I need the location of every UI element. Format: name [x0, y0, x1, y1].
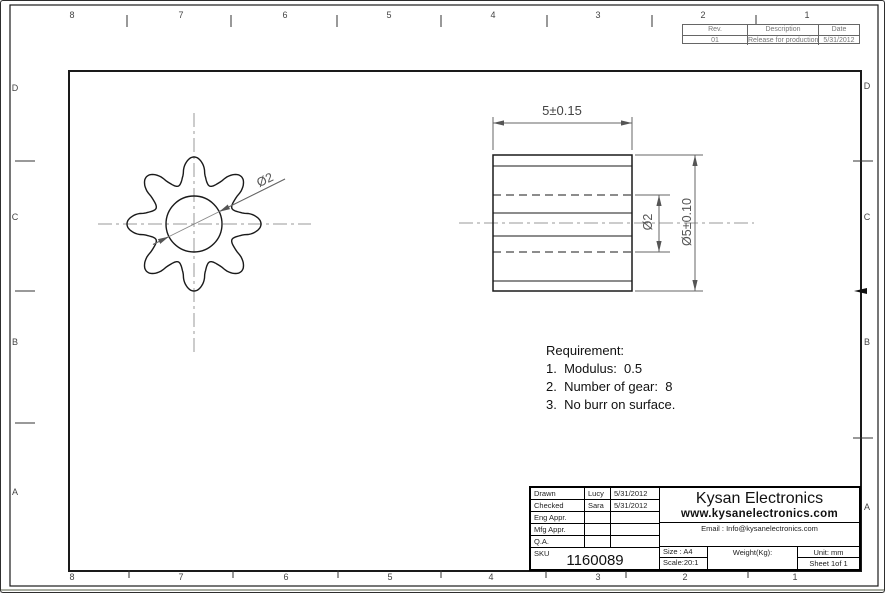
zone-label-bottom-4: 4	[485, 572, 497, 582]
qa-date	[611, 536, 660, 548]
zone-label-right-b: B	[861, 337, 873, 347]
checked-label: Checked	[531, 500, 585, 512]
zone-label-bottom-1: 1	[789, 572, 801, 582]
qa-name	[585, 536, 611, 548]
zone-label-left-c: C	[9, 212, 21, 222]
zone-label-top-2: 2	[697, 10, 709, 20]
qa-label: Q.A.	[531, 536, 585, 548]
requirement-item-3: 3. No burr on surface.	[546, 396, 675, 414]
requirements-note: Requirement: 1. Modulus: 0.5 2. Number o…	[546, 342, 675, 414]
window-bottom-edge	[1, 589, 884, 591]
drawn-name: Lucy	[585, 488, 611, 500]
drawn-label: Drawn	[531, 488, 585, 500]
requirements-title: Requirement:	[546, 342, 675, 360]
zone-label-top-1: 1	[801, 10, 813, 20]
eng-appr-label: Eng Appr.	[531, 512, 585, 524]
zone-label-right-c: C	[861, 212, 873, 222]
zone-label-top-7: 7	[175, 10, 187, 20]
weight-cell: Weight(Kg):	[708, 547, 798, 569]
zone-label-top-8: 8	[66, 10, 78, 20]
size-cell: Size : A4	[660, 547, 708, 558]
zone-label-left-a: A	[9, 487, 21, 497]
checked-name: Sara	[585, 500, 611, 512]
revision-header-description: Description	[747, 25, 818, 35]
zone-label-bottom-2: 2	[679, 572, 691, 582]
zone-label-right-d: D	[861, 81, 873, 91]
company-name: Kysan Electronics	[696, 490, 823, 508]
extension-lines	[493, 117, 703, 291]
revision-header-date: Date	[818, 25, 859, 35]
sku-label: SKU	[534, 548, 549, 559]
dim-width-label: 5±0.15	[513, 103, 611, 118]
company-website: www.kysanelectronics.com	[681, 508, 838, 521]
sheet-cell: Sheet 1of 1	[798, 558, 859, 569]
unit-cell: Unit: mm	[798, 547, 859, 558]
title-block: Drawn Lucy 5/31/2012 Checked Sara 5/31/2…	[529, 486, 861, 571]
front-centerlines	[98, 113, 311, 353]
zone-label-bottom-8: 8	[66, 572, 78, 582]
checked-date: 5/31/2012	[611, 500, 660, 512]
revision-row-description: Release for production	[747, 35, 818, 45]
zone-label-top-3: 3	[592, 10, 604, 20]
zone-label-top-4: 4	[487, 10, 499, 20]
zone-label-bottom-6: 6	[280, 572, 292, 582]
zone-label-top-6: 6	[279, 10, 291, 20]
zone-label-left-d: D	[9, 83, 21, 93]
company-cell: Kysan Electronics www.kysanelectronics.c…	[660, 488, 859, 523]
zone-label-right-a: A	[861, 502, 873, 512]
revision-row-date: 5/31/2012	[818, 35, 859, 45]
requirement-item-1: 1. Modulus: 0.5	[546, 360, 675, 378]
requirement-item-2: 2. Number of gear: 8	[546, 378, 675, 396]
zone-label-bottom-7: 7	[175, 572, 187, 582]
zone-label-bottom-5: 5	[384, 572, 396, 582]
zone-label-top-5: 5	[383, 10, 395, 20]
eng-appr-name	[585, 512, 611, 524]
drawn-date: 5/31/2012	[611, 488, 660, 500]
dimension-lines	[153, 117, 703, 291]
mfg-appr-date	[611, 524, 660, 536]
sku-value: 1160089	[531, 551, 659, 569]
dim-hole-side-label: Ø2	[641, 207, 655, 237]
revision-table: Rev. Description Date 01 Release for pro…	[682, 24, 860, 44]
drawing-sheet: 8 7 6 5 4 3 2 1 8 7 6 5 4 3 2 1 D C B A …	[0, 0, 885, 593]
eng-appr-date	[611, 512, 660, 524]
mfg-appr-name	[585, 524, 611, 536]
mfg-appr-label: Mfg Appr.	[531, 524, 585, 536]
gear-front-view	[98, 113, 311, 353]
sku-cell: SKU 1160089	[531, 548, 660, 569]
gear-side-view	[459, 155, 754, 291]
zone-label-left-b: B	[9, 337, 21, 347]
revision-row-rev: 01	[683, 35, 747, 45]
zone-label-bottom-3: 3	[592, 572, 604, 582]
revision-header-rev: Rev.	[683, 25, 747, 35]
company-email: Email : Info@kysanelectronics.com	[660, 523, 859, 547]
scale-cell: Scale:20:1	[660, 558, 708, 569]
dim-outer-dia-label: Ø5±0.10	[680, 184, 694, 260]
